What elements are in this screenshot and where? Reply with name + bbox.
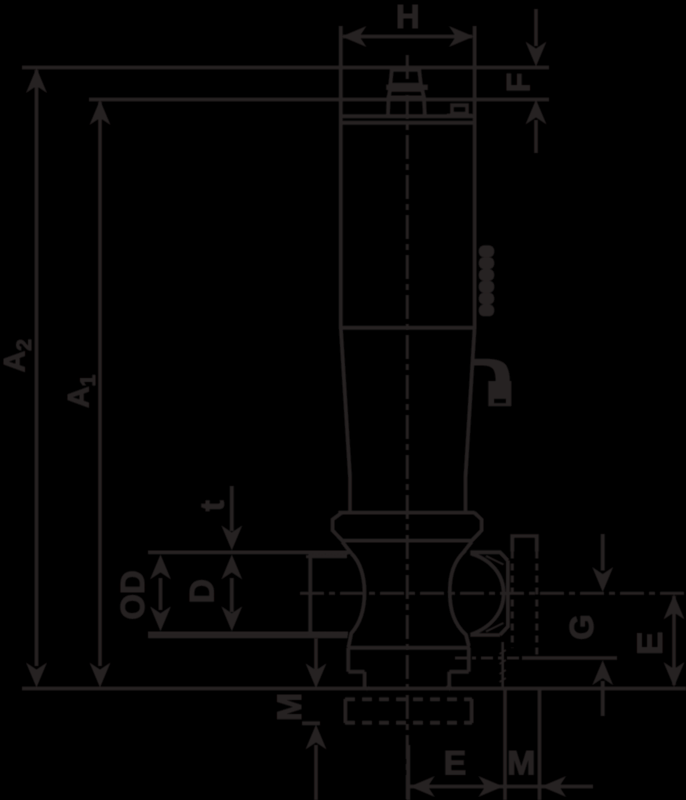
svg-text:H: H (396, 0, 420, 35)
svg-text:t: t (194, 500, 231, 511)
svg-text:M: M (271, 693, 309, 721)
svg-text:G: G (563, 614, 600, 640)
svg-text:M: M (507, 745, 535, 783)
svg-text:E: E (631, 632, 670, 655)
svg-text:D: D (184, 579, 222, 604)
svg-text:F: F (501, 73, 537, 93)
svg-text:E: E (444, 745, 467, 783)
svg-text:OD: OD (114, 570, 151, 620)
